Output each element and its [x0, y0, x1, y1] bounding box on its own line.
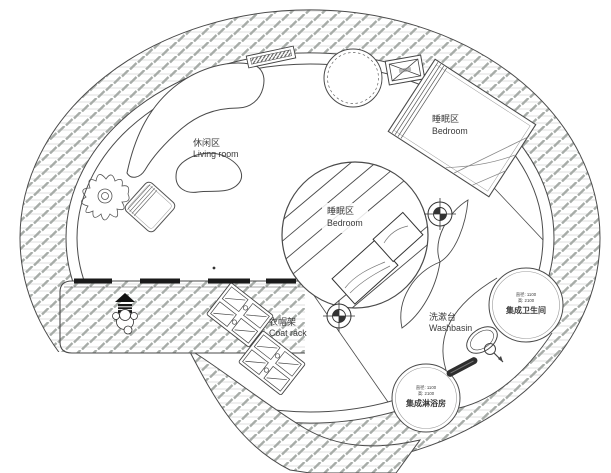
bathroom-pod-circle [489, 268, 563, 342]
floor-plan-drawing: 休闲区 Living room 睡眠区 Bedroom 睡眠区 Bedroom … [0, 0, 611, 473]
coffee-table [176, 153, 242, 192]
shower-pod-dim2: 高: 2100 [418, 390, 435, 397]
shower-pod-dim1: 直径: 1100 [416, 384, 437, 390]
round-table [324, 49, 382, 107]
dot-mark [213, 267, 216, 270]
potted-plant [81, 174, 129, 220]
label-washbasin-en: Washbasin [429, 323, 472, 333]
armchair [123, 180, 177, 234]
bathroom-pod-dim1: 直径: 1100 [516, 291, 537, 297]
bathroom-pod-name: 集成卫生间 [505, 305, 546, 315]
label-living-zh: 休闲区 [193, 137, 220, 148]
label-bedroom-loft-zh: 睡眠区 [327, 205, 354, 216]
label-bedroom-main-zh: 睡眠区 [432, 113, 459, 124]
label-living-en: Living room [193, 149, 238, 159]
label-bedroom-main-en: Bedroom [432, 126, 468, 136]
shower-pod-name: 集成淋浴房 [405, 398, 446, 408]
floor-plan-canvas: 休闲区 Living room 睡眠区 Bedroom 睡眠区 Bedroom … [0, 0, 611, 473]
label-bedroom-loft-en: Bedroom [327, 218, 363, 228]
label-washbasin-zh: 洗漱台 [429, 311, 456, 322]
loft-bedroom-circle [282, 162, 428, 308]
label-coat-rack-zh: 衣帽架 [269, 316, 296, 327]
label-coat-rack-en: Coat rack [269, 328, 307, 338]
bathroom-pod-dim2: 高: 2100 [518, 297, 535, 304]
